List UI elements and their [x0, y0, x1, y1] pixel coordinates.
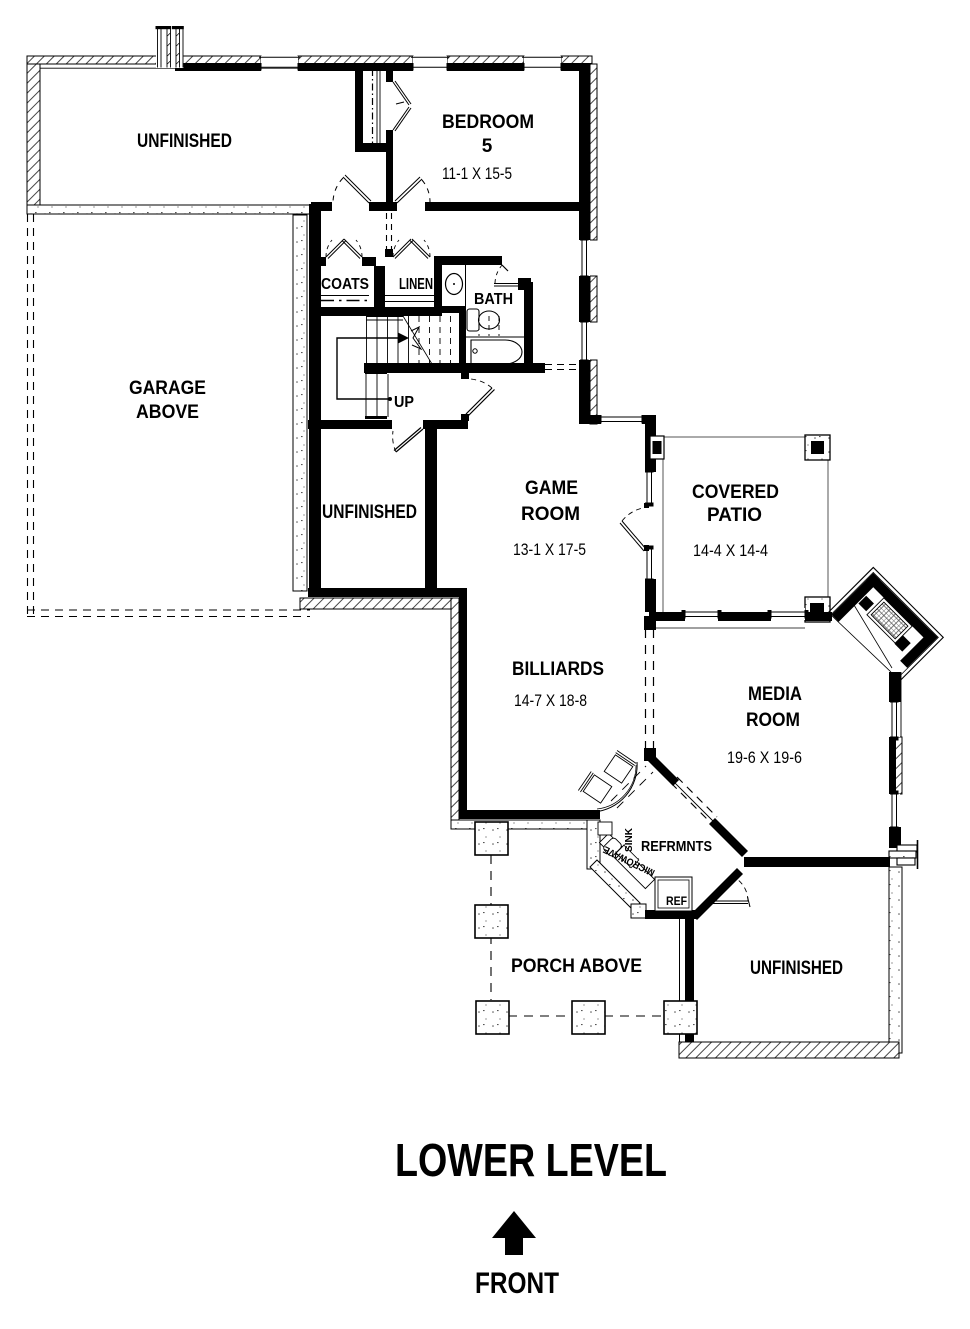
svg-text:ABOVE: ABOVE: [136, 402, 199, 423]
svg-text:REFRMNTS: REFRMNTS: [641, 839, 712, 855]
svg-text:UNFINISHED: UNFINISHED: [137, 131, 232, 152]
svg-text:FRONT: FRONT: [475, 1267, 559, 1300]
svg-text:14-7 X 18-8: 14-7 X 18-8: [514, 691, 587, 710]
svg-text:ROOM: ROOM: [746, 710, 800, 731]
svg-text:BILLIARDS: BILLIARDS: [512, 659, 604, 680]
svg-text:REF: REF: [666, 894, 687, 908]
svg-text:BATH: BATH: [474, 291, 513, 308]
svg-text:GARAGE: GARAGE: [129, 378, 206, 399]
svg-text:ROOM: ROOM: [521, 504, 580, 525]
svg-text:COATS: COATS: [321, 276, 369, 293]
svg-text:BEDROOM: BEDROOM: [442, 112, 534, 133]
svg-text:UP: UP: [394, 394, 414, 411]
svg-text:5: 5: [482, 136, 493, 157]
svg-text:LINEN: LINEN: [399, 276, 433, 293]
svg-text:11-1 X 15-5: 11-1 X 15-5: [442, 164, 512, 183]
svg-text:13-1 X 17-5: 13-1 X 17-5: [513, 540, 586, 559]
svg-text:PATIO: PATIO: [707, 505, 762, 526]
svg-text:COVERED: COVERED: [692, 482, 779, 503]
svg-text:19-6 X 19-6: 19-6 X 19-6: [727, 748, 802, 767]
svg-text:MEDIA: MEDIA: [748, 684, 802, 705]
svg-text:SINK: SINK: [624, 827, 635, 852]
svg-text:14-4 X 14-4: 14-4 X 14-4: [693, 541, 768, 560]
svg-text:UNFINISHED: UNFINISHED: [750, 958, 843, 979]
svg-text:GAME: GAME: [525, 478, 578, 499]
svg-text:LOWER LEVEL: LOWER LEVEL: [395, 1134, 667, 1186]
svg-text:PORCH ABOVE: PORCH ABOVE: [511, 956, 642, 977]
svg-text:UNFINISHED: UNFINISHED: [322, 502, 417, 523]
